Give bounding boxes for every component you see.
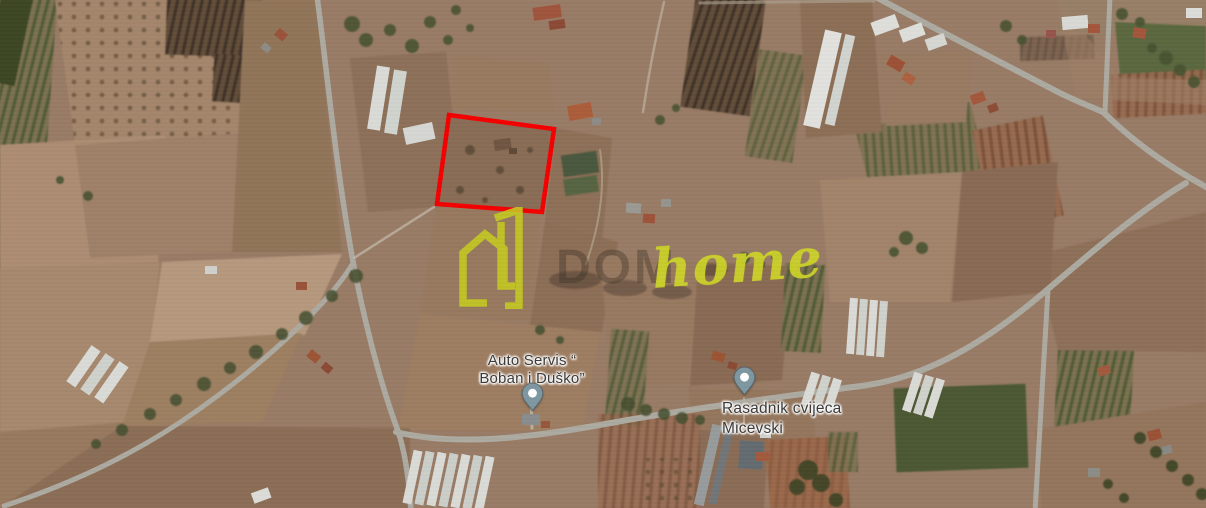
parcel-outline: [437, 115, 554, 212]
poi-rasadnik-label: Rasadnik cvijeca Micevski: [722, 399, 842, 439]
poi-label-line2: Micevski: [722, 419, 842, 439]
map-pin-icon[interactable]: [521, 382, 544, 412]
satellite-map[interactable]: DOM home Auto Servis “ Boban i Duško” Ra…: [0, 0, 1206, 508]
map-pin-icon[interactable]: [733, 366, 756, 396]
parcel-overlay-layer: [0, 0, 1206, 508]
poi-label-line1: Auto Servis “: [442, 352, 622, 370]
poi-label-line1: Rasadnik cvijeca: [722, 399, 842, 419]
